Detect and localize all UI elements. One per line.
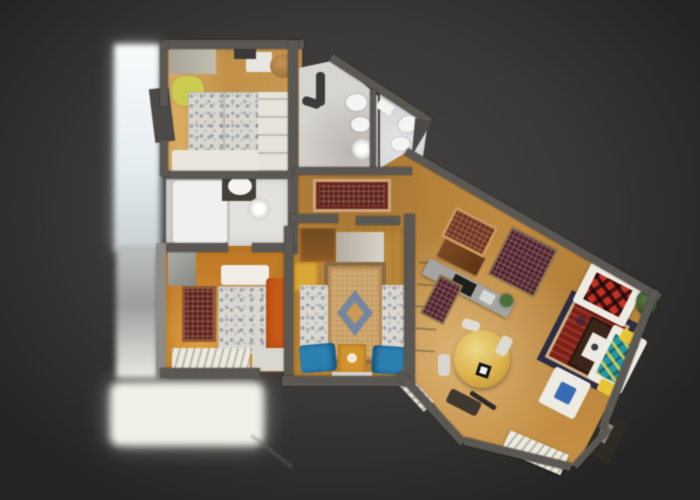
bathtub bbox=[170, 178, 230, 246]
twin-bed-left bbox=[188, 92, 224, 154]
scan-artifact-line bbox=[251, 434, 294, 468]
middle-bed-left bbox=[300, 285, 328, 347]
nightstand-lamp bbox=[347, 353, 357, 363]
cushion-blue-left bbox=[299, 342, 337, 373]
dining-chair-left bbox=[438, 354, 450, 376]
wall-bedroom-twin-left-b bbox=[160, 140, 168, 176]
wall-midbed-bottom bbox=[282, 376, 408, 386]
magazine-logo bbox=[590, 342, 599, 351]
terrace-strip-lower bbox=[116, 246, 158, 378]
viewer-canvas[interactable] bbox=[0, 0, 700, 500]
wall-midbed-left bbox=[284, 226, 293, 386]
sink-kitchen bbox=[479, 289, 496, 305]
wall-bedroom-twin-top bbox=[162, 40, 304, 49]
wardrobe-mirror bbox=[168, 248, 196, 286]
terrace-strip-top bbox=[114, 44, 160, 250]
wall-twin-bath-divider bbox=[164, 171, 292, 179]
wall-hall-bottom-b bbox=[356, 216, 400, 225]
cabinet-dark-wood bbox=[300, 228, 336, 262]
wall-bath-bottom-left bbox=[162, 243, 228, 252]
fiducial-tag bbox=[475, 362, 491, 378]
terrace-band-bottom bbox=[110, 382, 264, 446]
washing-machine bbox=[248, 198, 270, 220]
apartment-dollhouse[interactable] bbox=[0, 0, 700, 500]
wall-bathroom-divider bbox=[370, 90, 376, 172]
toilet-small-bath bbox=[228, 177, 252, 195]
wall-hall-bottom-a bbox=[290, 214, 338, 223]
wall-double-bed-bottom bbox=[160, 368, 260, 378]
bidet-main-bath bbox=[351, 117, 370, 132]
wall-double-bed-left bbox=[156, 243, 166, 380]
counter-plant bbox=[500, 294, 513, 307]
wall-hall-top bbox=[294, 167, 412, 175]
fiducial-tag-inner bbox=[479, 366, 488, 375]
rug-red-bedroom bbox=[182, 286, 216, 342]
gold-nightstand bbox=[338, 344, 366, 374]
wall-midbed-right bbox=[404, 214, 415, 386]
double-bed-pillows bbox=[221, 265, 269, 285]
toilet-main-bath bbox=[346, 94, 367, 111]
wall-bedroom-twin-left-a bbox=[160, 42, 168, 106]
cushion-blue-sofa bbox=[554, 381, 577, 405]
bed-foot-bench bbox=[172, 150, 260, 173]
cabinet-gray-white bbox=[336, 232, 384, 262]
wardrobe-gray bbox=[170, 48, 216, 74]
runner-rug bbox=[313, 179, 391, 212]
washbasin-main-bath bbox=[352, 139, 372, 159]
